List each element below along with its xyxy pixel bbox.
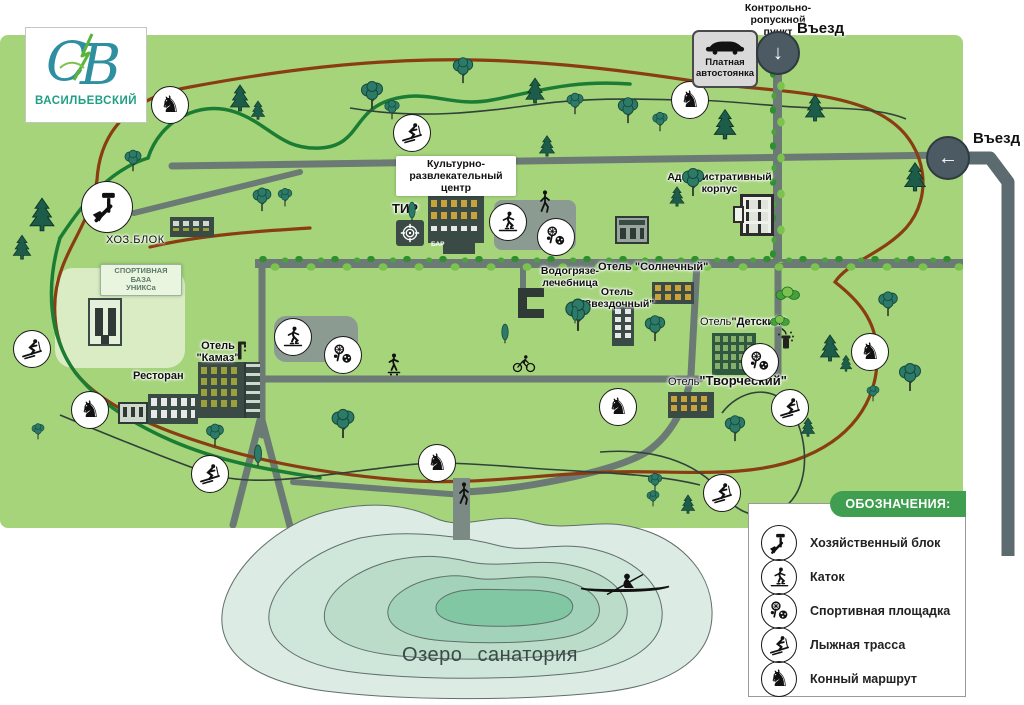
sports-base-label: СПОРТИВНАЯ БАЗА УНИКСа (100, 264, 182, 296)
sports-icon (544, 225, 568, 249)
sports-marker (324, 336, 362, 374)
utility-block-label: ХОЗ.БЛОК (106, 234, 165, 246)
skier-marker (191, 455, 229, 493)
legend-item-label: Конный маршрут (810, 672, 917, 686)
tools-icon (768, 532, 791, 555)
brand-name: ВАСИЛЬЕВСКИЙ (35, 95, 137, 107)
skier-icon (400, 121, 424, 145)
shooting-range-target-icon (396, 220, 424, 246)
skier-icon (778, 396, 802, 420)
pine-tree-icon (902, 162, 928, 192)
skier-legend-icon (761, 627, 797, 663)
restaurant-label: Ресторан (133, 370, 184, 382)
skier-marker (13, 330, 51, 368)
deciduous-tree-icon (451, 56, 475, 84)
horse-marker: ♞ (71, 391, 109, 429)
tools-legend-icon (761, 525, 797, 561)
deciduous-tree-icon (123, 149, 143, 172)
deciduous-tree-icon (205, 423, 226, 447)
legend-item: Спортивная площадка (761, 594, 965, 628)
deciduous-tree-icon (680, 167, 706, 197)
skier-marker (771, 389, 809, 427)
sports-icon (748, 350, 772, 374)
paid-parking-label: Платная автостоянка (696, 58, 754, 80)
legend-item-label: Спортивная площадка (810, 604, 950, 618)
deciduous-tree-icon (877, 290, 900, 317)
horse-icon: ♞ (80, 399, 101, 422)
horse-marker: ♞ (851, 333, 889, 371)
pine-tree-icon (27, 197, 57, 232)
cyclist-icon (512, 355, 536, 378)
skater-icon (496, 210, 520, 234)
utility-block-building (170, 217, 214, 237)
bush-icon (775, 286, 801, 300)
skier-marker (393, 114, 431, 152)
skater-legend-icon (761, 559, 797, 595)
deciduous-tree-icon (651, 111, 669, 132)
pier-person-icon (457, 482, 471, 513)
cultural-center-label: Культурно- развлекательный центр (396, 156, 516, 196)
tools-marker (81, 181, 133, 233)
restaurant-annex (118, 402, 148, 424)
cypress-tree-icon (571, 305, 579, 324)
skier-marker (703, 474, 741, 512)
pine-tree-icon (803, 94, 827, 122)
svg-text:В: В (79, 33, 121, 94)
mud-baths-wing-bottom (518, 309, 544, 318)
water-tap-icon (233, 338, 247, 367)
logo-monogram-icon: С В (40, 28, 132, 94)
down-arrow-icon: ↓ (773, 42, 783, 65)
horse-icon: ♞ (608, 396, 629, 419)
tools-icon (90, 190, 124, 224)
cypress-tree-icon (408, 201, 417, 222)
pine-tree-icon (712, 109, 739, 141)
deciduous-tree-icon (359, 80, 385, 110)
pine-tree-icon (680, 494, 697, 514)
horse-icon: ♞ (160, 94, 181, 117)
cultural-center-annex (443, 243, 475, 254)
horse-icon: ♞ (427, 452, 448, 475)
skier-icon (710, 481, 734, 505)
bush-icon (770, 315, 791, 326)
hotel-sunny-label: Отель "Солнечный" (598, 261, 708, 273)
pine-tree-icon (524, 77, 547, 104)
pine-tree-icon (11, 234, 33, 260)
skier-icon (768, 634, 791, 657)
deciduous-tree-icon (383, 99, 401, 120)
horse-marker: ♞ (599, 388, 637, 426)
horse-icon: ♞ (860, 341, 881, 364)
sports-marker (741, 343, 779, 381)
resort-logo: С В ВАСИЛЬЕВСКИЙ (25, 27, 147, 123)
deciduous-tree-icon (565, 92, 585, 115)
legend-item: Лыжная трасса (761, 628, 965, 662)
paid-parking-sign: Платная автостоянка (692, 30, 758, 88)
sports-icon (768, 600, 791, 623)
deciduous-tree-icon (330, 408, 357, 439)
hotel-star-building (612, 306, 634, 346)
deciduous-tree-icon (616, 96, 640, 124)
left-arrow-icon: ← (938, 147, 958, 170)
sports-icon (331, 343, 355, 367)
legend-panel: Хозяйственный блокКатокСпортивная площад… (748, 503, 966, 697)
hotel-creative-building (668, 392, 714, 418)
hotel-kamaz-building (198, 362, 244, 418)
legend-item: Хозяйственный блок (761, 526, 965, 560)
legend-item: Каток (761, 560, 965, 594)
legend-item: ♞Конный маршрут (761, 662, 965, 696)
deciduous-tree-icon (866, 385, 881, 402)
skater-marker (489, 203, 527, 241)
hotel-kamaz-tower (244, 362, 260, 418)
admin-building-porch (733, 206, 744, 223)
admin-building (740, 194, 774, 236)
deciduous-tree-icon (646, 490, 661, 507)
horse-legend-icon: ♞ (761, 661, 797, 697)
hotel-creative-prefix: Отель (668, 376, 699, 388)
entrance-top-label: Въезд (797, 21, 844, 38)
deciduous-tree-icon (277, 187, 294, 207)
legend-item-label: Лыжная трасса (810, 638, 905, 652)
pine-tree-icon (538, 135, 557, 157)
horse-marker: ♞ (418, 444, 456, 482)
hotel-kids-prefix: Отель (700, 316, 731, 328)
skier-icon (198, 462, 222, 486)
deciduous-tree-icon (643, 314, 667, 342)
horse-icon: ♞ (769, 668, 790, 691)
lake-label: Озеро санатория (360, 644, 620, 667)
entrance-right-arrow-icon: ← (926, 136, 970, 180)
deciduous-tree-icon (897, 362, 923, 392)
skater-marker (274, 318, 312, 356)
horse-icon: ♞ (680, 89, 701, 112)
mud-baths-label: Водогрязе- лечебница (538, 266, 602, 290)
legend-items: Хозяйственный блокКатокСпортивная площад… (749, 526, 965, 696)
sports-base-building (88, 298, 122, 346)
deciduous-tree-icon (31, 423, 46, 440)
entrance-top-arrow-icon: ↓ (756, 31, 800, 75)
cultural-center-building (428, 195, 484, 243)
resort-map: Озеро санатория (0, 0, 1024, 705)
sports-legend-icon (761, 593, 797, 629)
skater-icon (768, 566, 791, 589)
cypress-tree-icon (253, 444, 263, 467)
entrance-right-label: Въезд (973, 131, 1020, 148)
deciduous-tree-icon (723, 414, 747, 442)
skateboarder-icon (385, 353, 401, 384)
deciduous-tree-icon (251, 187, 273, 212)
restaurant-building (148, 394, 198, 424)
skier-icon (20, 337, 44, 361)
skater-icon (281, 325, 305, 349)
rower-icon (577, 568, 673, 603)
sports-marker (537, 218, 575, 256)
pine-tree-icon (228, 84, 252, 112)
legend-item-label: Каток (810, 570, 845, 584)
bar-label: БАР (431, 241, 444, 248)
pavilion-building (615, 216, 649, 244)
pine-tree-icon (250, 100, 267, 120)
cypress-tree-icon (501, 323, 510, 344)
hotel-creative-name: "Творческий" (699, 373, 786, 388)
car-icon (703, 36, 747, 56)
fountain-icon (775, 327, 797, 356)
legend-item-label: Хозяйственный блок (810, 536, 940, 550)
legend-title: ОБОЗНАЧЕНИЯ: (830, 491, 966, 517)
walking-person-icon (538, 190, 552, 221)
horse-marker: ♞ (151, 86, 189, 124)
